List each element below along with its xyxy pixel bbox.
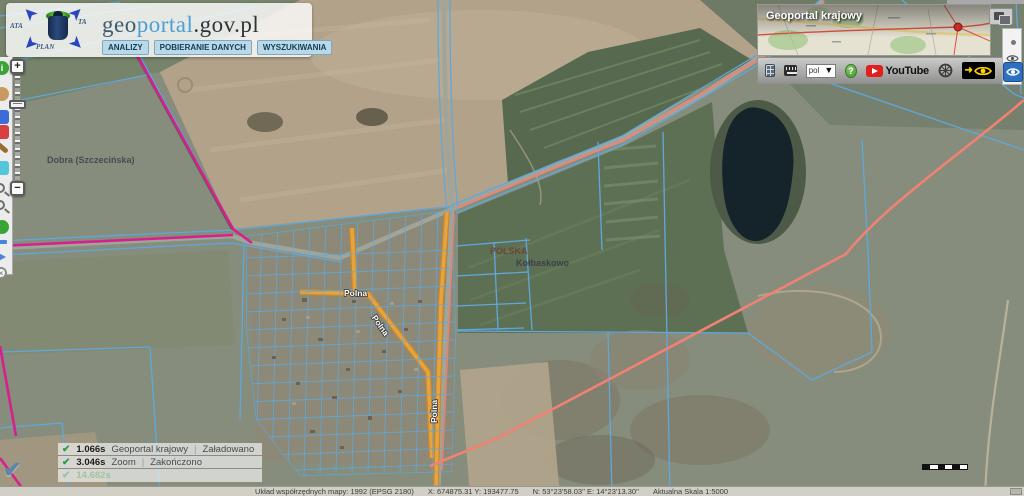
youtube-play-icon [866, 65, 883, 77]
logo-fragment: ATA [10, 22, 23, 30]
window-grid-icon[interactable] [765, 64, 775, 77]
status-toasts: ✔ ✔ 1.066s Geoportal krajowy | Załadowan… [0, 443, 262, 482]
accessibility-panel: ➜ [962, 62, 995, 79]
zoom-slider-track[interactable] [14, 76, 21, 180]
contrast-arrow-button[interactable]: ➜ [965, 66, 973, 76]
overview-map-panel[interactable]: Geoportal krajowy [757, 4, 991, 56]
zoom-slider-handle[interactable] [9, 100, 26, 109]
status-scale: Aktualna Skala 1:5000 [653, 487, 728, 496]
language-value: pol [809, 66, 820, 75]
header-menu: ANALIZY POBIERANIE DANYCH WYSZUKIWANIA [102, 40, 332, 55]
language-select[interactable]: pol ▼ [806, 64, 837, 78]
youtube-label: YouTube [886, 65, 929, 77]
zoom-in-icon[interactable] [0, 183, 5, 193]
map-toolbar: pol ▼ ? YouTube ➜ [757, 57, 1003, 84]
toast-status: Zakończono [150, 457, 202, 468]
globe-icon[interactable] [0, 220, 9, 234]
keyboard-icon[interactable] [784, 65, 796, 76]
check-icon: ✔ [62, 444, 70, 455]
red-flag-icon[interactable] [0, 125, 9, 139]
help-button[interactable]: ? [845, 64, 856, 78]
eye-icon [1006, 67, 1020, 77]
menu-analizy[interactable]: ANALIZY [102, 40, 149, 55]
toast-row: ✔ 3.046s Zoom | Zakończono [58, 456, 262, 469]
header-logo-box: ➤ ➤ ➤ ➤ ATA TA PLAN geoportal.gov.pl ANA… [6, 3, 312, 57]
overview-title: Geoportal krajowy [766, 10, 862, 22]
photos-icon[interactable] [989, 8, 1013, 25]
status-crs: Układ współrzędnych mapy: 1992 (EPSG 218… [255, 487, 414, 496]
geoportal-app: Dobra (Szczecińska) POLSKA Kołbaskowo Po… [0, 0, 1024, 496]
hand-icon[interactable] [0, 87, 9, 101]
status-bar: Układ współrzędnych mapy: 1992 (EPSG 218… [0, 486, 1024, 496]
zoom-out-button[interactable]: − [10, 181, 25, 196]
send-icon[interactable] [0, 251, 6, 263]
toast-time: 14.682s [76, 470, 110, 481]
map-scale-bar [922, 464, 968, 470]
visibility-eye-button[interactable] [1003, 62, 1023, 82]
left-tool-strip: i × [0, 57, 13, 275]
toast-source: Zoom [111, 457, 135, 468]
pencil-icon[interactable] [0, 141, 9, 154]
compass-wheel-icon[interactable] [938, 63, 953, 78]
zoom-in-button[interactable]: + [10, 59, 25, 74]
label-town: Kołbaskowo [516, 258, 570, 268]
big-check-icon: ✔ [3, 457, 21, 483]
toast-row: ✔ 14.682s [58, 469, 262, 482]
menu-wyszukiwania[interactable]: WYSZUKIWANIA [257, 40, 333, 55]
status-geo: N: 53°23'58.03'' E: 14°23'13.30'' [533, 487, 639, 496]
label-street-1: Polna [344, 288, 367, 298]
toast-separator: | [142, 457, 144, 468]
chevron-down-icon: ▼ [824, 66, 833, 75]
check-icon: ✔ [62, 470, 70, 481]
label-street-3: Polna [429, 400, 439, 423]
blue-flag-icon[interactable] [0, 110, 9, 124]
contrast-eye-button[interactable] [974, 65, 992, 77]
layers-icon[interactable] [0, 161, 9, 175]
menu-pobieranie-danych[interactable]: POBIERANIE DANYCH [154, 40, 252, 55]
toast-separator: | [194, 444, 196, 455]
label-region: Dobra (Szczecińska) [47, 155, 135, 165]
toast-time: 1.066s [76, 444, 105, 455]
resize-corner[interactable] [1010, 488, 1022, 495]
check-icon: ✔ [62, 457, 70, 468]
toast-status: Załadowano [202, 444, 254, 455]
toast-source: Geoportal krajowy [111, 444, 188, 455]
toast-row: ✔ 1.066s Geoportal krajowy | Załadowano [58, 443, 262, 456]
measure-icon[interactable] [0, 240, 7, 244]
layer-dot-icon[interactable] [1011, 40, 1016, 45]
label-country: POLSKA [490, 246, 528, 256]
logo-fragment: PLAN [36, 43, 54, 51]
geoportal-logo-icon: ➤ ➤ ➤ ➤ ATA TA PLAN [10, 6, 98, 54]
logo-fragment: TA [78, 18, 87, 26]
status-xy: X: 674875.31 Y: 193477.75 [428, 487, 519, 496]
youtube-button[interactable]: YouTube [866, 65, 929, 77]
zoom-out-icon[interactable] [0, 200, 5, 210]
site-title: geoportal.gov.pl [102, 12, 259, 38]
toast-time: 3.046s [76, 457, 105, 468]
info-icon[interactable]: i [0, 61, 9, 75]
